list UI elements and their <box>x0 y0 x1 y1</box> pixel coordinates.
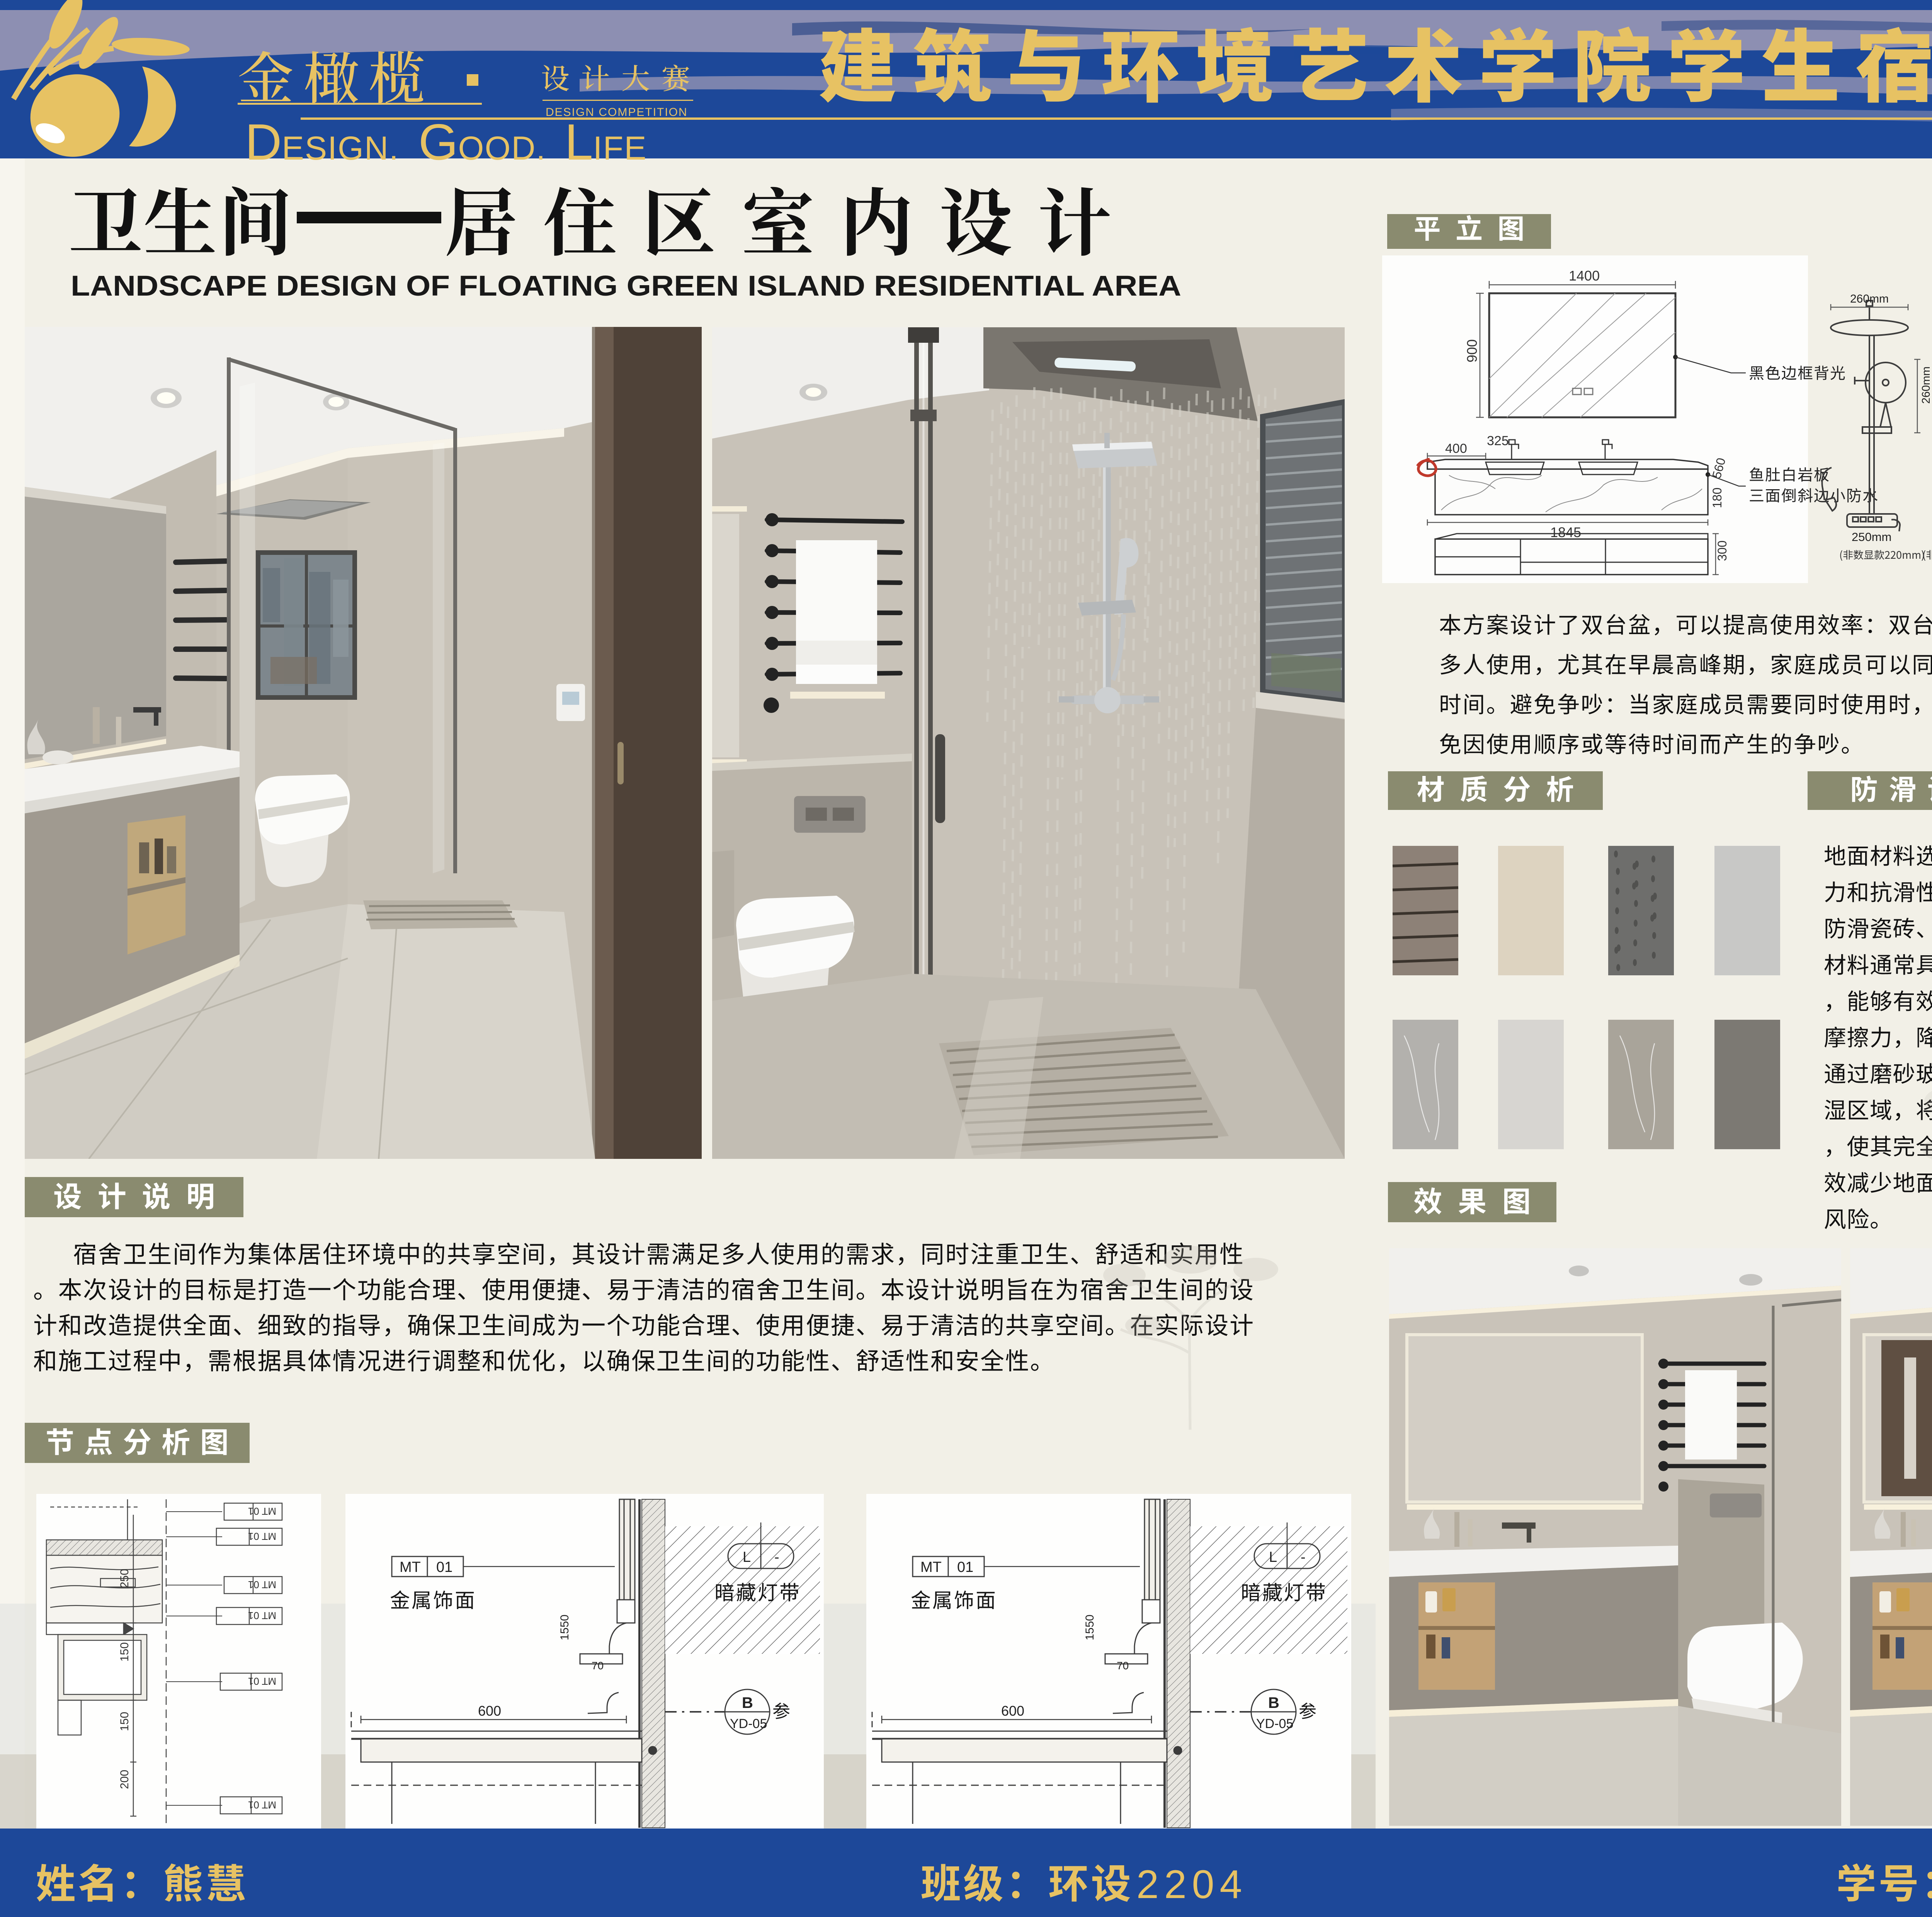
svg-text:MT 01: MT 01 <box>248 1505 276 1517</box>
svg-text:150: 150 <box>118 1712 131 1731</box>
svg-text:MT: MT <box>400 1559 421 1575</box>
svg-text:70: 70 <box>592 1660 604 1672</box>
svg-text:B: B <box>1268 1694 1279 1711</box>
svg-text:LANDSCAPE DESIGN OF FLOATING G: LANDSCAPE DESIGN OF FLOATING GREEN ISLAN… <box>71 270 1181 302</box>
svg-text:1400: 1400 <box>1569 268 1600 284</box>
svg-text:325: 325 <box>1487 434 1509 448</box>
svg-text:L: L <box>1269 1549 1277 1565</box>
svg-text:MT 01: MT 01 <box>248 1579 276 1590</box>
svg-text:250mm: 250mm <box>1852 530 1891 544</box>
svg-text:B: B <box>742 1694 753 1711</box>
svg-text:180: 180 <box>1710 488 1724 508</box>
svg-text:250: 250 <box>118 1569 131 1588</box>
svg-text:01: 01 <box>957 1559 973 1575</box>
svg-text:600: 600 <box>1001 1703 1024 1719</box>
svg-text:YD-05: YD-05 <box>1256 1716 1293 1731</box>
svg-text:MT 01: MT 01 <box>248 1531 276 1542</box>
svg-text:900: 900 <box>1464 339 1480 362</box>
svg-text:1845: 1845 <box>1550 524 1581 540</box>
svg-text:-: - <box>1301 1549 1306 1565</box>
svg-text:1550: 1550 <box>1083 1614 1096 1640</box>
svg-text:260mm: 260mm <box>1920 366 1932 404</box>
svg-text:YD-05: YD-05 <box>730 1716 767 1731</box>
svg-text:1550: 1550 <box>558 1614 571 1640</box>
svg-text:600: 600 <box>478 1703 501 1719</box>
svg-text:L: L <box>743 1549 751 1565</box>
svg-text:-: - <box>774 1549 779 1565</box>
svg-text:01: 01 <box>436 1559 452 1575</box>
svg-text:MT 01: MT 01 <box>248 1675 276 1687</box>
svg-text:70: 70 <box>1117 1660 1129 1672</box>
svg-text:400: 400 <box>1445 441 1467 456</box>
svg-text:MT 01: MT 01 <box>248 1610 276 1621</box>
svg-text:300: 300 <box>1715 541 1729 561</box>
svg-text:MT: MT <box>920 1559 942 1575</box>
svg-text:2204: 2204 <box>1136 1862 1247 1907</box>
svg-text:MT 01: MT 01 <box>248 1799 276 1811</box>
svg-text:150: 150 <box>118 1642 131 1662</box>
svg-text:260mm: 260mm <box>1850 293 1889 305</box>
svg-text:200: 200 <box>118 1770 131 1789</box>
